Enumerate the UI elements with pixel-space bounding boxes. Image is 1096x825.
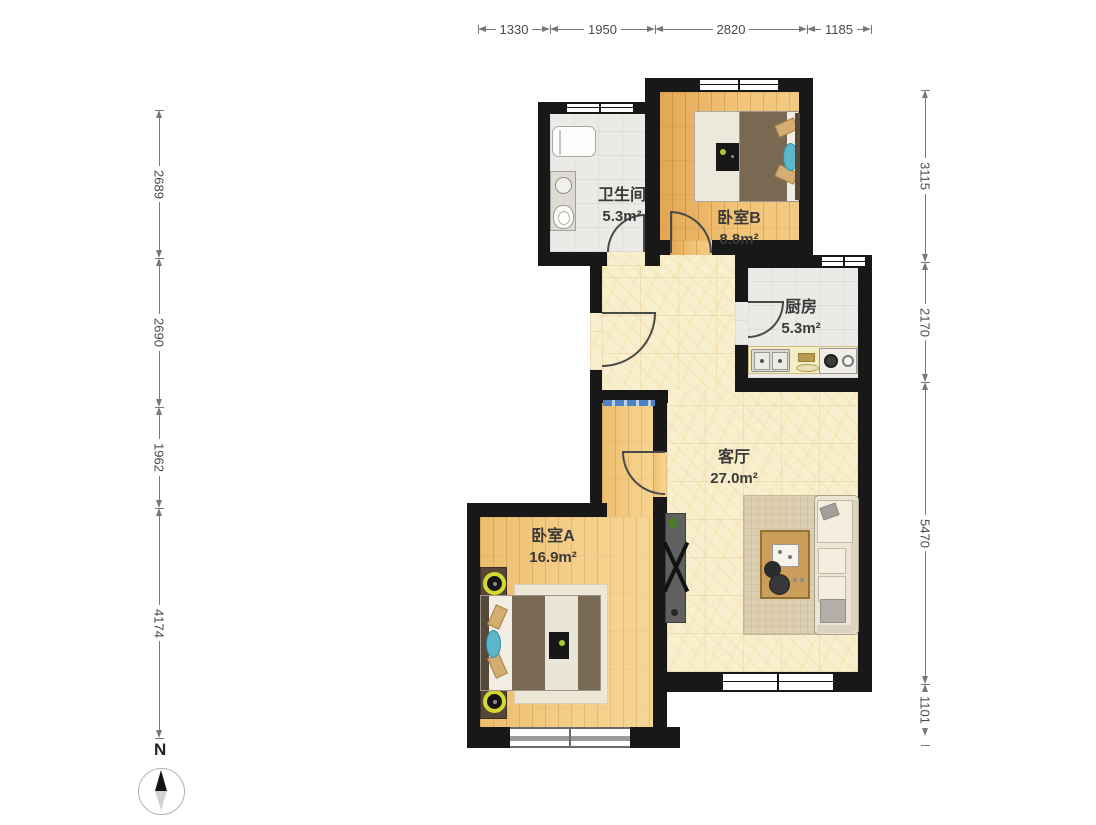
room-name: 客厅 [710, 448, 758, 469]
stove-burner [842, 355, 854, 367]
dimension-top-1: 1330 [478, 22, 550, 36]
dimension-label: 1962 [152, 439, 167, 476]
kitchen-sink [751, 349, 790, 372]
dimension-tick [921, 90, 930, 91]
room-name: 卧室A [529, 527, 577, 548]
compass: N [130, 738, 200, 825]
dimension-label: 3115 [918, 158, 933, 194]
kitchen-door-gap [735, 302, 748, 345]
compass-needle-north-icon [155, 770, 167, 791]
tv-dot [731, 155, 734, 158]
bathroom-label: 卫生间 5.3m² [598, 186, 646, 226]
toilet [553, 205, 574, 229]
nightstand-lamp [483, 690, 506, 713]
sofa-ottoman [820, 599, 846, 623]
arrow-down-icon [156, 399, 162, 407]
sofa [814, 495, 859, 635]
arrow-down-icon [922, 374, 928, 382]
dimension-tick [155, 110, 164, 111]
dimension-label: 1185 [821, 22, 857, 37]
dimension-tick [155, 738, 164, 739]
dimension-top-2: 1950 [550, 22, 655, 36]
kitchen-label: 厨房 5.3m² [781, 298, 820, 338]
wall [467, 503, 607, 517]
dimension-tick [550, 25, 551, 34]
dimension-left-2: 2690 [151, 258, 167, 407]
bathtub [552, 126, 596, 157]
kitchen-door-leaf [748, 301, 784, 303]
tv-power-light [720, 149, 726, 155]
arrow-down-icon [922, 676, 928, 684]
wall [735, 378, 872, 392]
threshold-strip [603, 400, 655, 406]
arrow-down-icon [922, 728, 928, 736]
dimension-tick [155, 407, 164, 408]
entry-door-leaf [602, 312, 656, 314]
dimension-tick [155, 508, 164, 509]
tv-power-light [559, 640, 565, 646]
arrow-up-icon [922, 90, 928, 98]
dimension-label: 2690 [152, 314, 167, 351]
arrow-left-icon [478, 26, 486, 32]
bathroom-vanity [550, 171, 576, 231]
sofa-armrest [817, 625, 855, 633]
floor-plan: 卫生间 5.3m² 卧室B 8.8m² 厨房 5.3m² 客厅 27.0m² 卧… [0, 0, 1096, 825]
dimension-left-3: 1962 [151, 407, 167, 508]
coffee-table [760, 530, 810, 599]
wall [735, 255, 748, 302]
dimension-top-4: 1185 [807, 22, 871, 36]
tv [549, 632, 569, 659]
arrow-down-icon [922, 254, 928, 262]
tray-dot [788, 555, 792, 559]
room-area: 5.3m² [781, 319, 820, 339]
bedroom-b-bed [739, 111, 799, 202]
bed-pillow [487, 604, 508, 629]
arrow-up-icon [922, 262, 928, 270]
arrow-up-icon [922, 684, 928, 692]
wall [590, 252, 602, 313]
table-dot [793, 578, 797, 582]
bathroom-window [567, 102, 633, 114]
arrow-right-icon [863, 26, 871, 32]
bedroom-a-window [510, 727, 630, 748]
nightstand-lamp [483, 572, 506, 595]
room-name: 卫生间 [598, 186, 646, 207]
wall [538, 102, 550, 266]
arrow-up-icon [156, 258, 162, 266]
dimension-label: 2689 [152, 166, 167, 203]
plant [668, 518, 678, 528]
dimension-label: 5470 [918, 515, 933, 552]
dimension-top-3: 2820 [655, 22, 807, 36]
dimension-tick [921, 262, 930, 263]
dimension-tick [155, 258, 164, 259]
bedroom-b-dresser [694, 111, 740, 202]
bedroom-a-bed [480, 595, 601, 691]
room-name: 卧室B [717, 209, 761, 230]
room-area: 27.0m² [710, 469, 758, 489]
bedroom-b-label: 卧室B 8.8m² [717, 209, 761, 249]
wall [799, 78, 813, 255]
bedroom-a-label: 卧室A 16.9m² [529, 527, 577, 567]
arrow-right-icon [647, 26, 655, 32]
bed-cushion [486, 630, 501, 658]
dimension-label: 2820 [713, 22, 750, 37]
wall [645, 240, 670, 255]
dimension-tick [655, 25, 656, 34]
arrow-down-icon [156, 500, 162, 508]
dimension-tick [478, 25, 479, 34]
serving-plate [796, 364, 819, 372]
wall [653, 403, 667, 452]
room-name: 厨房 [781, 298, 820, 319]
stand-knob [671, 609, 678, 616]
arrow-left-icon [550, 26, 558, 32]
kitchen-window [822, 255, 865, 268]
dimension-left-4: 4174 [151, 508, 167, 738]
tv-stand [665, 513, 686, 623]
dimension-label: 1330 [496, 22, 533, 37]
dimension-tick [921, 745, 930, 746]
stove [819, 348, 857, 374]
stove-burner [824, 354, 838, 368]
room-area: 8.8m² [717, 230, 761, 250]
teapot [769, 574, 790, 595]
living-room-label: 客厅 27.0m² [710, 448, 758, 488]
dimension-right-4: 1101 [917, 684, 933, 745]
headboard [795, 113, 800, 200]
vanity-sink [555, 177, 572, 194]
dimension-right-2: 2170 [917, 262, 933, 382]
entry-door-gap [590, 313, 602, 370]
sink-drain [760, 359, 764, 363]
arrow-up-icon [156, 508, 162, 516]
dimension-tick [807, 25, 808, 34]
arrow-down-icon [156, 730, 162, 738]
bedroom-a-door-leaf [622, 451, 665, 453]
bedroom-b-door-leaf [670, 211, 672, 253]
room-area: 5.3m² [598, 207, 646, 227]
cutting-board [798, 353, 815, 362]
arrow-left-icon [807, 26, 815, 32]
dimension-tick [921, 684, 930, 685]
wall [645, 78, 660, 254]
table-dot [800, 578, 804, 582]
arrow-left-icon [655, 26, 663, 32]
north-label: N [154, 740, 166, 760]
living-room-window [723, 672, 833, 692]
arrow-up-icon [922, 382, 928, 390]
compass-needle-south-icon [155, 791, 167, 810]
dimension-tick [921, 382, 930, 383]
wall [467, 503, 480, 748]
dimension-label: 1101 [918, 692, 933, 728]
dimension-right-1: 3115 [917, 90, 933, 262]
dimension-label: 2170 [918, 304, 933, 341]
dimension-label: 4174 [152, 605, 167, 642]
tray-dot [778, 550, 782, 554]
sofa-cushion [818, 548, 846, 574]
arrow-right-icon [542, 26, 550, 32]
bathroom-door-gap [607, 252, 645, 266]
room-area: 16.9m² [529, 548, 577, 568]
bathtub-divider [559, 130, 561, 155]
wall [858, 255, 872, 692]
toilet-bowl [558, 211, 570, 225]
arrow-up-icon [156, 110, 162, 118]
wall [833, 672, 872, 692]
dimension-label: 1950 [584, 22, 621, 37]
arrow-down-icon [156, 250, 162, 258]
arrow-right-icon [799, 26, 807, 32]
arrow-up-icon [156, 407, 162, 415]
dimension-tick [871, 25, 872, 34]
tv [716, 143, 739, 171]
dimension-right-3: 5470 [917, 382, 933, 684]
bedroom-b-window [700, 78, 778, 92]
dimension-left-1: 2689 [151, 110, 167, 258]
sink-drain [778, 359, 782, 363]
